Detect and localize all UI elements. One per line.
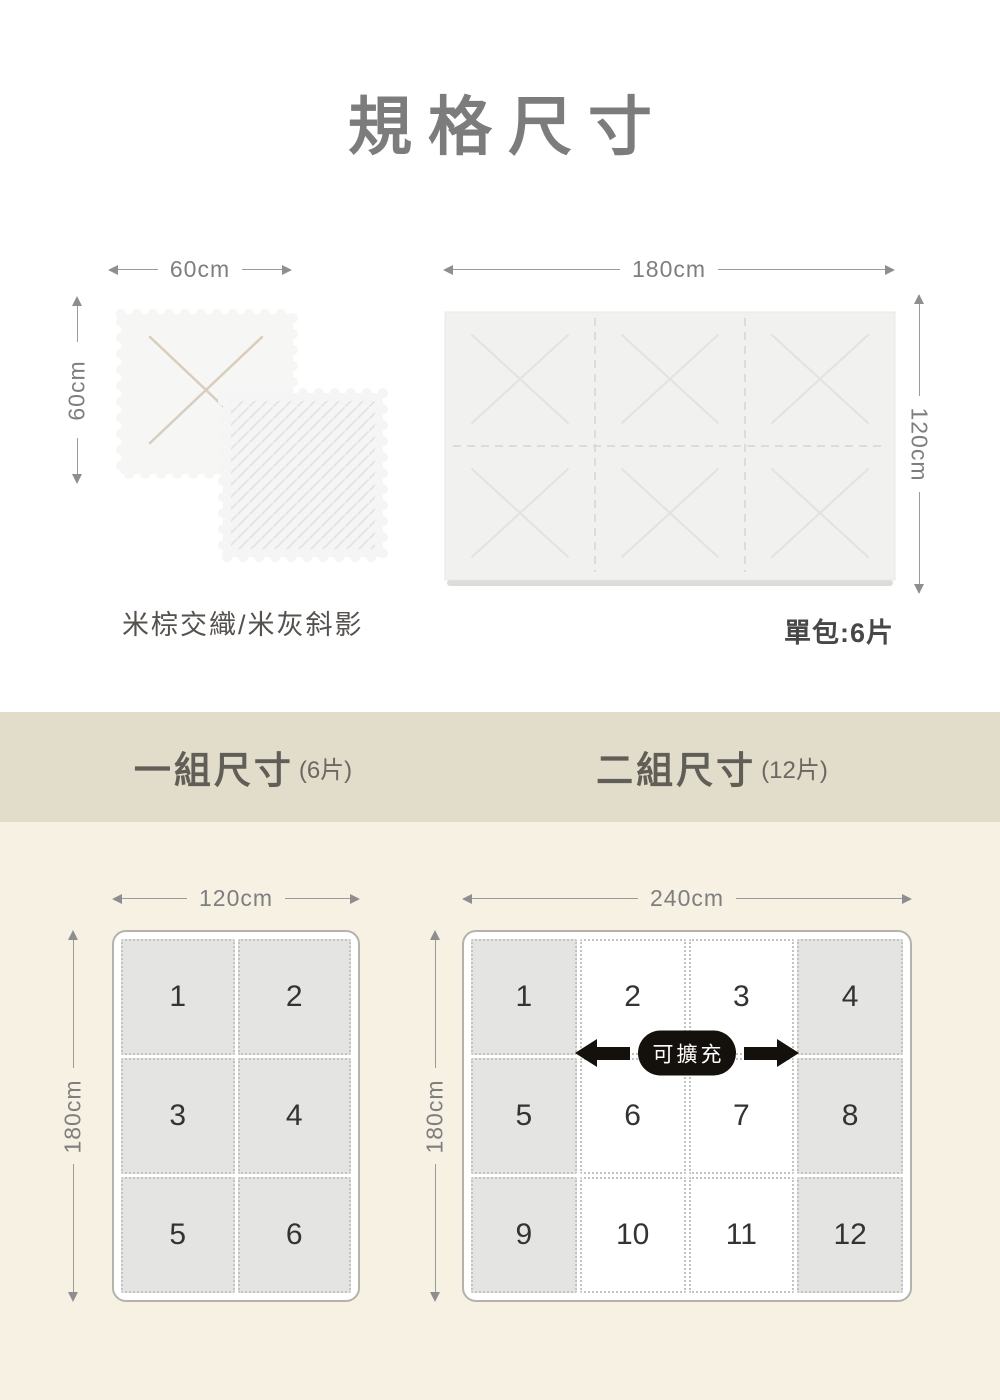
set1-header: 一組尺寸 (6片)	[134, 740, 352, 794]
single-mat-height-label: 60cm	[64, 360, 91, 420]
spec-top-section: 規格尺寸 60cm 60cm	[0, 0, 1000, 712]
set2-piece-count: (12片)	[761, 750, 828, 785]
arrowhead-down-icon	[914, 584, 924, 594]
set2-height-dimension: 180cm	[420, 930, 450, 1302]
set1-tile-1: 1	[121, 939, 235, 1055]
pack-mat-width-dimension: 180cm	[443, 256, 895, 283]
pack-mat-shadow	[447, 580, 893, 586]
arrowhead-right-icon	[902, 894, 912, 904]
set1-width-label: 120cm	[199, 885, 273, 912]
pack-mat-height-dimension: 120cm	[904, 294, 934, 594]
set2-tile-4: 4	[797, 939, 903, 1055]
spec-sheet-page: 規格尺寸 60cm 60cm	[0, 0, 1000, 1400]
mat-striped-pattern	[213, 383, 393, 567]
set2-grid: 1 2 3 4 5 6 7 8 9 10 11 12 可擴充	[462, 930, 912, 1302]
set1-tile-3: 3	[121, 1058, 235, 1174]
pattern-name-label: 米棕交織/米灰斜影	[122, 603, 364, 642]
arrowhead-left-icon	[462, 894, 472, 904]
arrowhead-down-icon	[68, 1292, 78, 1302]
set2-height-label: 180cm	[422, 1079, 449, 1153]
arrowhead-up-icon	[68, 930, 78, 940]
expand-arrow-right-icon	[744, 1039, 799, 1067]
set2-tile-8: 8	[797, 1058, 903, 1174]
set2-tile-9: 9	[471, 1177, 577, 1293]
layout-diagrams-section: 120cm 180cm 1 2 3 4 5 6 240cm	[0, 822, 1000, 1400]
section-headers-band: 一組尺寸 (6片) 二組尺寸 (12片)	[0, 712, 1000, 822]
arrowhead-right-icon	[350, 894, 360, 904]
set2-tile-1: 1	[471, 939, 577, 1055]
arrowhead-down-icon	[72, 474, 82, 484]
set1-piece-count: (6片)	[299, 750, 352, 785]
pack-count-label: 單包:6片	[784, 611, 894, 650]
set1-tile-5: 5	[121, 1177, 235, 1293]
single-mat-width-dimension: 60cm	[108, 256, 292, 283]
pack-mat-6pc	[443, 310, 897, 590]
set2-width-dimension: 240cm	[462, 885, 912, 912]
set1-width-dimension: 120cm	[112, 885, 360, 912]
single-mat-height-dimension: 60cm	[62, 296, 92, 484]
set1-tile-6: 6	[238, 1177, 352, 1293]
arrowhead-left-icon	[108, 265, 118, 275]
pack-mat-width-label: 180cm	[632, 256, 706, 283]
set1-title: 一組尺寸	[134, 740, 294, 794]
pack-mat-height-label: 120cm	[906, 407, 933, 481]
expandable-badge: 可擴充	[638, 1031, 736, 1076]
set2-tile-11: 11	[689, 1177, 795, 1293]
arrowhead-right-icon	[885, 265, 895, 275]
set1-height-label: 180cm	[60, 1079, 87, 1153]
set1-tile-2: 2	[238, 939, 352, 1055]
set2-title: 二組尺寸	[596, 740, 756, 794]
arrowhead-down-icon	[430, 1292, 440, 1302]
set1-height-dimension: 180cm	[58, 930, 88, 1302]
arrowhead-up-icon	[914, 294, 924, 304]
set2-tile-12: 12	[797, 1177, 903, 1293]
arrowhead-up-icon	[72, 296, 82, 306]
set2-width-label: 240cm	[650, 885, 724, 912]
set2-header: 二組尺寸 (12片)	[596, 740, 828, 794]
arrowhead-up-icon	[430, 930, 440, 940]
set1-grid: 1 2 3 4 5 6	[112, 930, 360, 1302]
set1-tile-4: 4	[238, 1058, 352, 1174]
arrowhead-left-icon	[443, 265, 453, 275]
single-mat-width-label: 60cm	[170, 256, 230, 283]
arrowhead-left-icon	[112, 894, 122, 904]
page-title: 規格尺寸	[0, 76, 1000, 168]
set2-tile-10: 10	[580, 1177, 686, 1293]
set2-tile-5: 5	[471, 1058, 577, 1174]
expand-arrow-left-icon	[575, 1039, 630, 1067]
arrowhead-right-icon	[282, 265, 292, 275]
